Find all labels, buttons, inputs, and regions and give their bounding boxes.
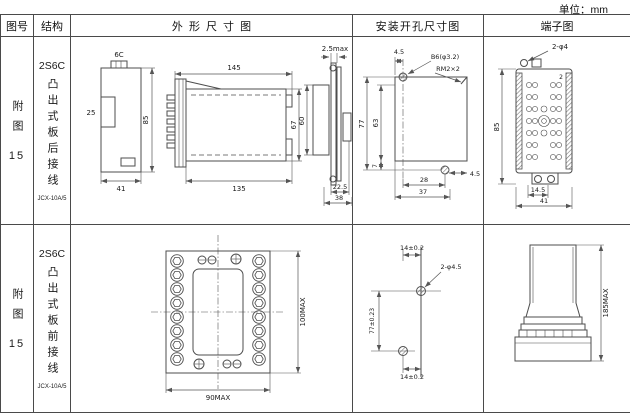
structure-cell-2: 2S6C 凸出式板前接线 JCX-10A/5 — [34, 225, 71, 413]
dim-145: 145 — [227, 64, 240, 72]
model-label-2: 2S6C — [39, 248, 65, 260]
dim-4-5-right: 4.5 — [470, 170, 480, 178]
mounting-cell-1: 4.5 B6(φ3.2) RM2×2 77 63 7 — [353, 37, 484, 225]
dim-85-terminal: 85 — [493, 123, 501, 132]
terminal-number: 2 — [559, 74, 563, 81]
mounting-drawing-rear: 4.5 B6(φ3.2) RM2×2 77 63 7 — [353, 37, 484, 219]
dim-22-5: 22.5 — [333, 183, 347, 191]
table-row: 附图 15 2S6C 凸出式板后接线 JCX-10A/5 — [1, 37, 630, 225]
relay-type-2: JCX-10A/5 — [37, 384, 66, 390]
dim-14-5: 14.5 — [531, 186, 545, 194]
dim-77-front: 77±0.23 — [369, 308, 376, 334]
fig-num-2: 15 — [9, 338, 25, 350]
relay-type-1: JCX-10A/5 — [37, 196, 66, 202]
terminal-drawing-rear: 2-φ4 2 — [484, 37, 630, 219]
outline-drawing-front: 100MAX 90MAX — [71, 225, 353, 407]
dim-90max: 90MAX — [206, 394, 231, 402]
dim-6c: 6C — [114, 51, 123, 59]
fig-no-cell-2: 附图 15 — [1, 225, 34, 413]
table-row: 附图 15 2S6C 凸出式板前接线 JCX-10A/5 — [1, 225, 630, 413]
thread-spec-label: RM2×2 — [436, 65, 460, 73]
mount-style-2: 凸出式板前接线 — [44, 266, 60, 378]
dim-2-5max: 2.5max — [322, 45, 348, 53]
mounting-drawing-front: 14±0.2 2-φ4.5 77±0.23 14±0.2 — [353, 225, 484, 407]
dim-41: 41 — [117, 185, 126, 193]
datasheet-page: 单位：mm 图号 结构 外形尺寸图 安装开孔尺寸图 端子图 附图 15 2S6C… — [0, 0, 630, 400]
dim-185max: 185MAX — [602, 288, 610, 317]
header-terminal: 端子图 — [484, 15, 630, 37]
panel-edge-view: 2.5max 60 22.5 — [298, 45, 352, 206]
hole-spec-label-front: 2-φ4.5 — [440, 263, 461, 271]
outline-drawing-rear: 6C 25 85 41 — [71, 37, 353, 219]
dim-77: 77 — [358, 120, 366, 129]
case-side-view: 6C 25 85 41 — [87, 51, 155, 193]
mounting-cell-2: 14±0.2 2-φ4.5 77±0.23 14±0.2 — [353, 225, 484, 413]
dim-100max: 100MAX — [299, 297, 307, 326]
dim-135: 135 — [232, 185, 245, 193]
relay-with-socket-side: 185MAX — [515, 245, 610, 361]
relay-side-view: 145 135 67 — [167, 64, 302, 193]
header-fig-no: 图号 — [1, 15, 34, 37]
fig-label-2: 附图 — [9, 288, 25, 328]
header-outline: 外形尺寸图 — [71, 15, 353, 37]
terminal-cell-2: 185MAX — [484, 225, 630, 413]
dim-14-top: 14±0.2 — [400, 244, 424, 252]
terminal-drawing-front: 185MAX — [484, 225, 630, 407]
dim-7: 7 — [372, 164, 379, 168]
header-structure: 结构 — [34, 15, 71, 37]
terminal-block-front: 2-φ4 2 — [493, 43, 572, 209]
terminal-hole-label: 2-φ4 — [552, 43, 569, 51]
dim-25: 25 — [87, 109, 96, 117]
dimension-table: 图号 结构 外形尺寸图 安装开孔尺寸图 端子图 附图 15 2S6C 凸出式板后… — [0, 14, 630, 413]
mounting-hole-layout: 4.5 B6(φ3.2) RM2×2 77 63 7 — [358, 48, 480, 200]
dim-85: 85 — [142, 116, 150, 125]
dim-63: 63 — [372, 119, 380, 128]
fig-num-1: 15 — [9, 150, 25, 162]
dim-67: 67 — [290, 121, 298, 130]
dim-14-bottom: 14±0.2 — [400, 373, 424, 381]
fig-no-cell-1: 附图 15 — [1, 37, 34, 225]
structure-cell-1: 2S6C 凸出式板后接线 JCX-10A/5 — [34, 37, 71, 225]
terminal-pins — [526, 82, 561, 159]
outline-cell-2: 100MAX 90MAX — [71, 225, 353, 413]
header-row: 图号 结构 外形尺寸图 安装开孔尺寸图 端子图 — [1, 15, 630, 37]
outline-cell-1: 6C 25 85 41 — [71, 37, 353, 225]
mount-style-1: 凸出式板后接线 — [44, 78, 60, 190]
hole-spec-label: B6(φ3.2) — [431, 53, 459, 61]
header-mounting: 安装开孔尺寸图 — [353, 15, 484, 37]
dim-60: 60 — [298, 117, 306, 126]
dim-41-terminal: 41 — [540, 197, 548, 205]
socket-front-view: 100MAX 90MAX — [151, 235, 307, 402]
dim-38: 38 — [335, 194, 343, 202]
dim-28: 28 — [420, 176, 428, 184]
mounting-hole-layout-front: 14±0.2 2-φ4.5 77±0.23 14±0.2 — [369, 244, 462, 381]
model-label-1: 2S6C — [39, 60, 65, 72]
fig-label-1: 附图 — [9, 100, 25, 140]
terminal-cell-1: 2-φ4 2 — [484, 37, 630, 225]
dim-4-5-top: 4.5 — [394, 48, 404, 56]
dim-37: 37 — [419, 188, 427, 196]
